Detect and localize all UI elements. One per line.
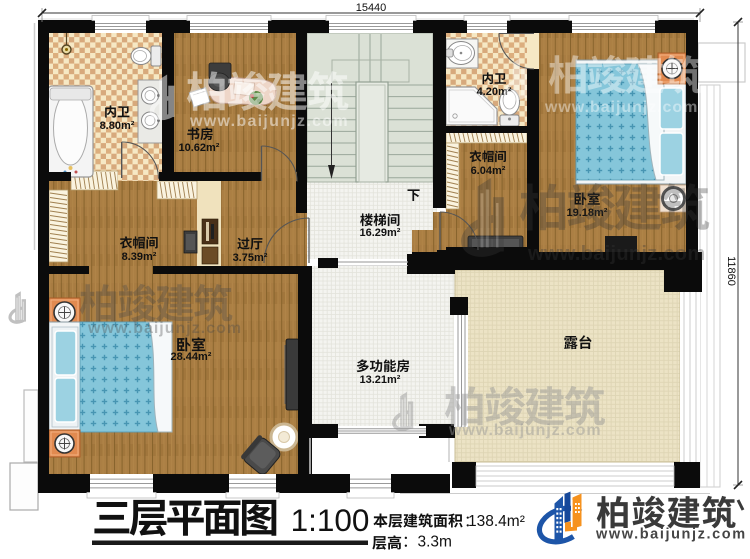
svg-text:8.80m²: 8.80m² <box>100 120 135 132</box>
svg-text:1:100: 1:100 <box>291 502 370 538</box>
svg-text:11860: 11860 <box>725 256 737 286</box>
svg-text:www.baijunjz.com: www.baijunjz.com <box>595 527 747 543</box>
svg-text:：3.3m: ：3.3m <box>402 534 452 551</box>
svg-text:www.baijunjz.com: www.baijunjz.com <box>448 422 602 439</box>
svg-text:138.4m²: 138.4m² <box>468 513 525 530</box>
svg-text:28.44m²: 28.44m² <box>171 351 212 363</box>
svg-text:6.04m²: 6.04m² <box>471 165 506 177</box>
svg-text:3.75m²: 3.75m² <box>233 252 268 264</box>
svg-text:www.baijunjz.com: www.baijunjz.com <box>189 113 349 130</box>
svg-text:15440: 15440 <box>356 2 387 14</box>
svg-text:www.baijunjz.com: www.baijunjz.com <box>544 99 698 116</box>
svg-text:16.29m²: 16.29m² <box>360 227 401 239</box>
svg-text:13.21m²: 13.21m² <box>360 374 401 386</box>
svg-text:www.baijunjz.com: www.baijunjz.com <box>527 243 705 265</box>
svg-text:www.baijunjz.com: www.baijunjz.com <box>87 320 242 337</box>
svg-text:8.39m²: 8.39m² <box>122 251 157 263</box>
svg-text:10.62m²: 10.62m² <box>179 142 220 154</box>
